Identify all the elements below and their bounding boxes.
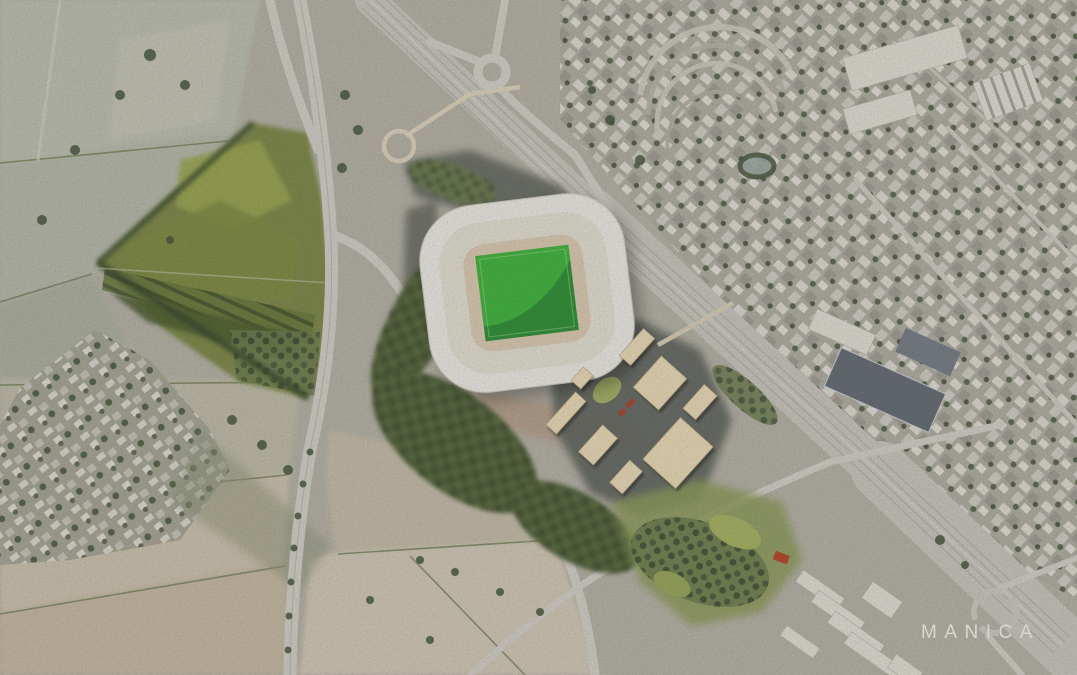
grain-overlay (0, 0, 1077, 675)
aerial-masterplan-rendering: MANICA (0, 0, 1077, 675)
satellite-scene: MANICA (0, 0, 1077, 675)
